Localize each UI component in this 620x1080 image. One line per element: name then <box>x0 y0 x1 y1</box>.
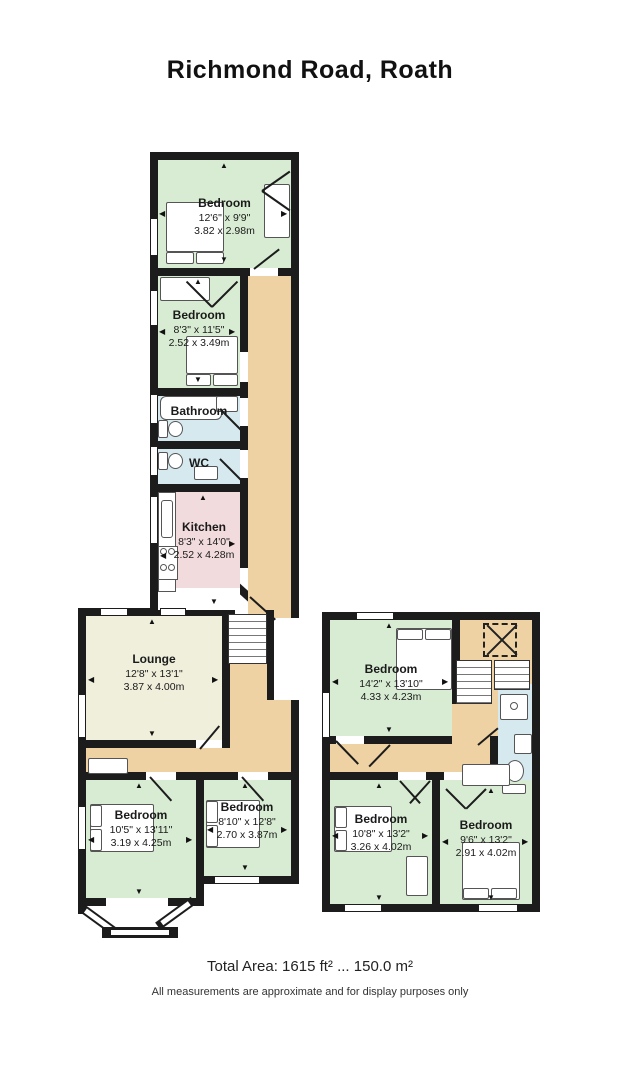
pillow-icon <box>425 629 451 640</box>
door-opening <box>240 398 248 426</box>
staircase <box>494 660 530 690</box>
measure-arrow-icon <box>88 836 94 844</box>
room-label-bedroom6: Bedroom 10'8" x 13'2" 3.26 x 4.02m <box>330 812 432 855</box>
wall <box>78 608 86 914</box>
measure-arrow-icon <box>422 832 428 840</box>
measure-arrow-icon <box>281 826 287 834</box>
measure-arrow-icon <box>194 376 202 384</box>
shower-head-icon <box>510 702 518 710</box>
measure-arrow-icon <box>148 618 156 626</box>
measure-arrow-icon <box>522 838 528 846</box>
wall <box>150 441 248 449</box>
room-label-bedroom4: Bedroom 8'10" x 12'8" 2.70 x 3.87m <box>202 800 292 843</box>
measure-arrow-icon <box>220 256 228 264</box>
skylight-x-icon <box>483 623 517 657</box>
wall <box>291 152 299 618</box>
measure-arrow-icon <box>442 678 448 686</box>
total-area-text: Total Area: 1615 ft² ... 150.0 m² <box>0 958 620 975</box>
window <box>78 694 86 738</box>
window <box>150 394 158 424</box>
staircase <box>228 614 267 664</box>
window <box>150 496 158 544</box>
measure-arrow-icon <box>332 678 338 686</box>
measure-arrow-icon <box>281 210 287 218</box>
window <box>100 608 128 616</box>
wall <box>291 700 299 884</box>
measure-arrow-icon <box>194 278 202 286</box>
measure-arrow-icon <box>229 328 235 336</box>
window <box>110 929 170 936</box>
wall <box>322 612 330 912</box>
wall <box>150 388 248 396</box>
door-opening <box>398 772 426 780</box>
measure-arrow-icon <box>159 328 165 336</box>
measure-arrow-icon <box>135 782 143 790</box>
measure-arrow-icon <box>135 888 143 896</box>
window <box>78 806 86 850</box>
room-label-bedroom7: Bedroom 9'6" x 13'2" 2.91 x 4.02m <box>438 818 534 861</box>
window <box>150 218 158 256</box>
measure-arrow-icon <box>332 832 338 840</box>
measure-arrow-icon <box>385 726 393 734</box>
room-label-bedroom5: Bedroom 14'2" x 13'10" 4.33 x 4.23m <box>330 662 452 705</box>
window <box>356 612 394 620</box>
staircase <box>456 660 492 704</box>
room-label-wc: WC <box>158 456 240 472</box>
room-label-bathroom: Bathroom <box>158 404 240 420</box>
pillow-icon <box>213 374 238 386</box>
measure-arrow-icon <box>199 494 207 502</box>
measure-arrow-icon <box>487 894 495 902</box>
measure-arrow-icon <box>220 162 228 170</box>
toilet-icon <box>168 421 183 437</box>
burner-icon <box>168 564 175 571</box>
room-label-bedroom2: Bedroom 8'3" x 11'5" 2.52 x 3.49m <box>158 308 240 351</box>
measure-arrow-icon <box>375 782 383 790</box>
measure-arrow-icon <box>241 864 249 872</box>
wardrobe-icon <box>88 758 128 774</box>
window <box>150 290 158 326</box>
window <box>150 446 158 476</box>
pillow-icon <box>463 888 489 899</box>
wall <box>532 612 540 912</box>
floorplan-canvas: Richmond Road, Roath <box>0 0 620 1080</box>
measure-arrow-icon <box>212 676 218 684</box>
sink-icon <box>514 734 532 754</box>
burner-icon <box>160 564 167 571</box>
toilet-icon <box>158 420 168 438</box>
page-title: Richmond Road, Roath <box>0 56 620 85</box>
measure-arrow-icon <box>487 787 495 795</box>
measure-arrow-icon <box>210 598 218 606</box>
measure-arrow-icon <box>229 540 235 548</box>
window <box>344 904 382 912</box>
window <box>160 608 186 616</box>
wardrobe-icon <box>462 764 510 786</box>
pillow-icon <box>397 629 423 640</box>
window <box>478 904 518 912</box>
measure-arrow-icon <box>442 838 448 846</box>
measure-arrow-icon <box>160 552 166 560</box>
wall <box>150 152 299 160</box>
measure-arrow-icon <box>186 836 192 844</box>
measure-arrow-icon <box>241 782 249 790</box>
hallway <box>230 664 267 700</box>
measure-arrow-icon <box>207 826 213 834</box>
window <box>214 876 260 884</box>
wall <box>322 612 540 620</box>
chimney-breast <box>406 856 428 896</box>
wall <box>150 484 248 492</box>
door-opening <box>240 352 248 382</box>
window <box>322 692 330 738</box>
bay-opening <box>106 898 168 906</box>
wall <box>266 610 274 708</box>
measure-arrow-icon <box>159 210 165 218</box>
hallway <box>230 700 291 748</box>
door-opening <box>240 450 248 478</box>
door-opening <box>336 736 364 744</box>
pillow-icon <box>166 252 194 264</box>
measure-arrow-icon <box>148 730 156 738</box>
disclaimer-text: All measurements are approximate and for… <box>0 986 620 998</box>
measure-arrow-icon <box>385 622 393 630</box>
room-label-bedroom3: Bedroom 10'5" x 13'11" 3.19 x 4.25m <box>86 808 196 851</box>
hallway-upper <box>248 276 291 618</box>
measure-arrow-icon <box>375 894 383 902</box>
room-label-bedroom1: Bedroom 12'6" x 9'9" 3.82 x 2.98m <box>158 196 291 239</box>
measure-arrow-icon <box>88 676 94 684</box>
room-label-lounge: Lounge 12'8" x 13'1" 3.87 x 4.00m <box>86 652 222 695</box>
